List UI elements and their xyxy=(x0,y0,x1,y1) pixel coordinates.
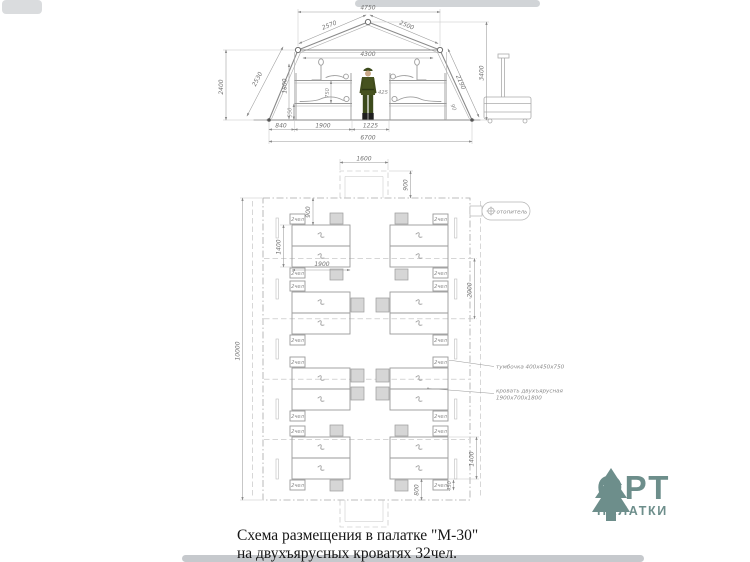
svg-text:2чел: 2чел xyxy=(291,338,305,344)
nightstand-label: тумбочка 400х450х750 xyxy=(496,365,565,371)
dim-aisle-width: 1225 xyxy=(363,123,378,130)
section-dimensions: 4750 2570 2500 4300 2400 2530 1800 750 xyxy=(218,5,489,145)
svg-text:2чел: 2чел xyxy=(434,429,448,435)
lying-figure-lower xyxy=(392,96,441,101)
dim-right-slope: 2190 xyxy=(454,74,467,91)
nightstands: 2чел 2чел 2чел 2чел 2чел 2чел 2чел 2чел … xyxy=(290,214,448,490)
dim-roof-right: 2500 xyxy=(398,20,415,32)
dim-center-clearance: 425 xyxy=(378,90,389,96)
svg-text:2чел: 2чел xyxy=(434,483,448,489)
dim-bed-length: 1900 xyxy=(315,123,330,130)
dim-ridge-width: 4750 xyxy=(360,5,375,12)
dim-head-gap: 900 xyxy=(305,206,312,218)
dim-block-length: 1900 xyxy=(314,261,329,268)
drawing-caption: Схема размещения в палатке "М-30" на дву… xyxy=(237,527,478,562)
bed-label-line2: 1900х700х1800 xyxy=(496,396,542,402)
nightstand: 2чел xyxy=(433,357,448,367)
caption-line1: Схема размещения в палатке "М-30" xyxy=(237,527,478,545)
nightstand: 2чел xyxy=(433,214,448,224)
caption-line2: на двухъярусных кроватях 32чел. xyxy=(237,545,478,562)
plan-dimensions: 10000 1600 900 900 1400 1900 2000 xyxy=(235,156,480,501)
lying-figure-upper xyxy=(391,74,413,79)
fir-tree-icon xyxy=(591,466,633,522)
nightstand: 2чел xyxy=(433,411,448,421)
left-knee-joint xyxy=(295,47,300,52)
svg-text:2чел: 2чел xyxy=(291,217,305,223)
dim-wall-inner-height: 1800 xyxy=(282,78,289,93)
nightstand: 2чел xyxy=(290,268,305,278)
section-view: 4750 2570 2500 4300 2400 2530 1800 750 xyxy=(218,5,531,145)
right-knee-joint xyxy=(437,47,442,52)
dim-block-width-b: 1400 xyxy=(469,451,476,466)
svg-text:2чел: 2чел xyxy=(291,284,305,290)
right-base-anchor xyxy=(470,118,474,122)
dim-block-width: 1400 xyxy=(276,239,283,254)
dim-entrance-depth: 900 xyxy=(403,179,410,191)
nightstand: 2чел xyxy=(433,335,448,345)
bed-block xyxy=(390,292,448,334)
ridge-joint xyxy=(365,19,370,24)
stools xyxy=(330,213,408,491)
bed-label-line1: кровать двухъярусная xyxy=(496,389,564,395)
nightstand: 2чел xyxy=(290,411,305,421)
bed-block xyxy=(390,368,448,410)
nightstand: 2чел xyxy=(433,268,448,278)
left-base-anchor xyxy=(267,118,271,122)
dim-bunk-height: 550 xyxy=(288,107,294,118)
seated-figure xyxy=(312,59,323,80)
ort-logo[interactable]: ОРТ ПАЛАТКИ xyxy=(591,466,670,518)
dim-left-height: 2400 xyxy=(218,79,225,94)
dim-skirt: 90 xyxy=(449,103,457,112)
dim-roof-left: 2570 xyxy=(321,19,338,31)
dim-total-height: 3400 xyxy=(479,65,486,80)
drawing-page: 4750 2570 2500 4300 2400 2530 1800 750 xyxy=(0,0,750,562)
dim-base-side: 840 xyxy=(275,123,287,130)
svg-text:2чел: 2чел xyxy=(291,360,305,366)
nightstand: 2чел xyxy=(290,281,305,291)
tent-outline xyxy=(263,198,470,500)
lying-figure-upper xyxy=(326,74,348,79)
bed-block xyxy=(390,437,448,479)
svg-text:2чел: 2чел xyxy=(291,429,305,435)
svg-text:2чел: 2чел xyxy=(291,483,305,489)
nightstand: 2чел xyxy=(290,214,305,224)
left-bunk-section xyxy=(295,59,353,120)
nightstand: 2чел xyxy=(290,335,305,345)
nightstand: 2чел xyxy=(433,480,448,490)
svg-text:2чел: 2чел xyxy=(291,414,305,420)
bed-block xyxy=(292,437,350,479)
bed-block xyxy=(390,225,448,267)
dim-end-gap: 800 xyxy=(414,484,421,496)
heater-section xyxy=(484,54,531,123)
dim-entrance-width: 1600 xyxy=(356,156,371,163)
nightstand: 2чел xyxy=(290,426,305,436)
entrance-top xyxy=(340,171,388,198)
soldier-figure xyxy=(360,68,377,120)
nightstand: 2чел xyxy=(290,480,305,490)
dim-nightstand-width: 450 xyxy=(447,480,453,491)
dim-left-slope: 2530 xyxy=(251,71,264,88)
svg-text:2чел: 2чел xyxy=(434,217,448,223)
dim-bunk-clearance: 750 xyxy=(325,87,331,98)
bed-block xyxy=(292,292,350,334)
svg-text:2чел: 2чел xyxy=(434,414,448,420)
dim-tent-length: 10000 xyxy=(235,341,242,360)
svg-text:2чел: 2чел xyxy=(434,284,448,290)
svg-text:2чел: 2чел xyxy=(434,271,448,277)
svg-text:2чел: 2чел xyxy=(434,338,448,344)
right-bunk-section xyxy=(389,59,447,120)
svg-text:2чел: 2чел xyxy=(434,360,448,366)
svg-text:2чел: 2чел xyxy=(291,271,305,277)
heater-plan: отопитель xyxy=(470,202,530,220)
dim-inner-width: 4300 xyxy=(360,51,375,58)
entrance-bottom xyxy=(340,500,388,527)
seated-figure xyxy=(415,59,426,80)
heater-label: отопитель xyxy=(497,210,528,216)
dim-total-width: 6700 xyxy=(360,135,375,142)
nightstand: 2чел xyxy=(290,357,305,367)
dim-bay-spacing: 2000 xyxy=(467,282,474,297)
nightstand: 2чел xyxy=(433,281,448,291)
plan-view: 2чел 2чел 2чел 2чел 2чел 2чел 2чел 2чел … xyxy=(235,156,565,528)
bed-block xyxy=(292,368,350,410)
nightstand: 2чел xyxy=(433,426,448,436)
